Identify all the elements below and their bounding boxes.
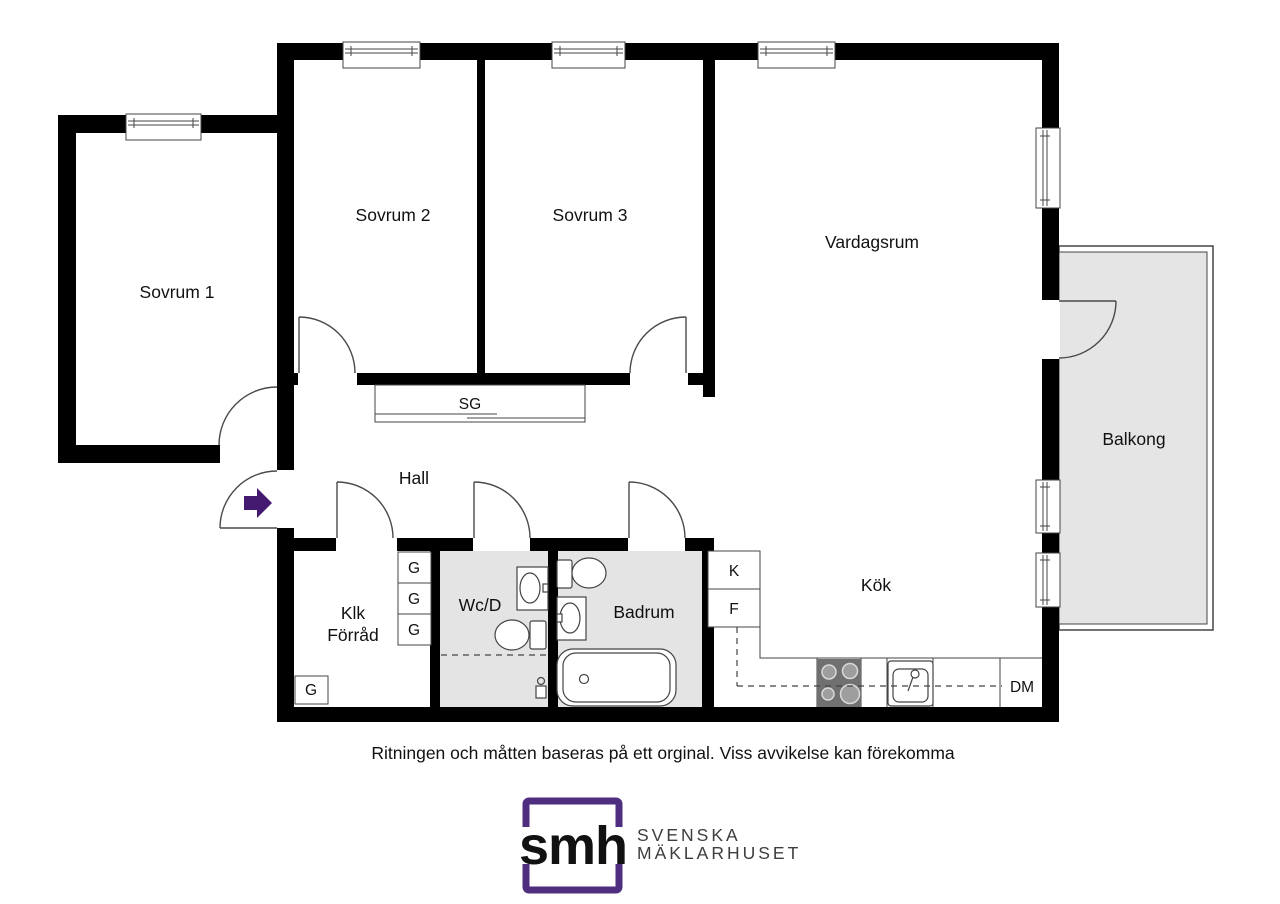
wcd-toilet-icon — [495, 620, 546, 650]
label-g2: G — [408, 591, 420, 608]
wall-sovrum3-vardagsrum — [703, 60, 715, 397]
floor-plan-drawing: Sovrum 1 Sovrum 2 Sovrum 3 Vardagsrum Ba… — [0, 0, 1280, 904]
door-wcd — [474, 482, 530, 538]
badrum-sink-icon — [557, 597, 586, 640]
brand-logo: smh SVENSKA MÄKLARHUSET — [514, 801, 801, 890]
window-vardagsrum-east — [1036, 128, 1060, 208]
window-sovrum2 — [343, 42, 420, 68]
door-sovrum2 — [299, 317, 355, 373]
door-klk — [337, 482, 393, 538]
window-sovrum3 — [552, 42, 625, 68]
wall-sovrum1-bottom — [58, 445, 220, 463]
wall-bottom — [278, 707, 1059, 722]
label-g3: G — [408, 622, 420, 639]
wall-west-lower — [277, 528, 294, 722]
disclaimer-text: Ritningen och måtten baseras på ett orgi… — [371, 743, 955, 763]
label-sg: SG — [459, 396, 481, 413]
stove-icon — [817, 659, 861, 707]
label-g4: G — [305, 682, 317, 699]
wall-sovrum2-sovrum3 — [477, 60, 485, 373]
room-label-sovrum2: Sovrum 2 — [356, 205, 431, 225]
floor-plan-page: Sovrum 1 Sovrum 2 Sovrum 3 Vardagsrum Ba… — [0, 0, 1280, 904]
kitchen-sink-icon — [888, 661, 933, 706]
window-kok-1 — [1036, 480, 1060, 533]
brand-name-line2: MÄKLARHUSET — [637, 843, 801, 863]
room-label-klk: Klk — [341, 603, 366, 623]
wall-west-upper — [277, 43, 294, 470]
room-label-sovrum3: Sovrum 3 — [553, 205, 628, 225]
label-k: K — [729, 563, 740, 580]
room-label-forrad: Förråd — [327, 625, 379, 645]
counter-edge — [760, 627, 1042, 658]
room-label-hall: Hall — [399, 468, 429, 488]
doors — [219, 301, 1116, 538]
wall-hall-3 — [530, 538, 628, 551]
door-sovrum1 — [219, 387, 277, 445]
logo-monogram: smh — [519, 816, 627, 876]
room-label-vardagsrum: Vardagsrum — [825, 232, 919, 252]
window-kok-2 — [1036, 553, 1060, 607]
room-label-badrum: Badrum — [613, 602, 674, 622]
door-badrum — [629, 482, 685, 538]
wall-hall-1 — [293, 538, 336, 551]
room-label-kok: Kök — [861, 575, 891, 595]
brand-name-line1: SVENSKA — [637, 825, 741, 845]
balcony-door-opening — [1041, 300, 1060, 359]
wall-stub — [293, 373, 298, 385]
door-sovrum3 — [630, 317, 686, 373]
wall-bedrooms-bottom — [357, 373, 630, 385]
bathtub-icon — [557, 649, 676, 706]
label-f: F — [729, 601, 738, 618]
room-label-sovrum1: Sovrum 1 — [140, 282, 215, 302]
label-g1: G — [408, 560, 420, 577]
entry-arrow-icon — [244, 488, 272, 518]
room-label-balkong: Balkong — [1102, 429, 1165, 449]
label-dm: DM — [1010, 679, 1034, 696]
wall-sovrum1-left — [58, 115, 76, 463]
room-label-wcd: Wc/D — [459, 595, 502, 615]
badrum-toilet-icon — [557, 558, 606, 588]
wcd-sink-icon — [517, 567, 548, 610]
window-sovrum1 — [126, 114, 201, 140]
window-vardagsrum-top — [758, 42, 835, 68]
